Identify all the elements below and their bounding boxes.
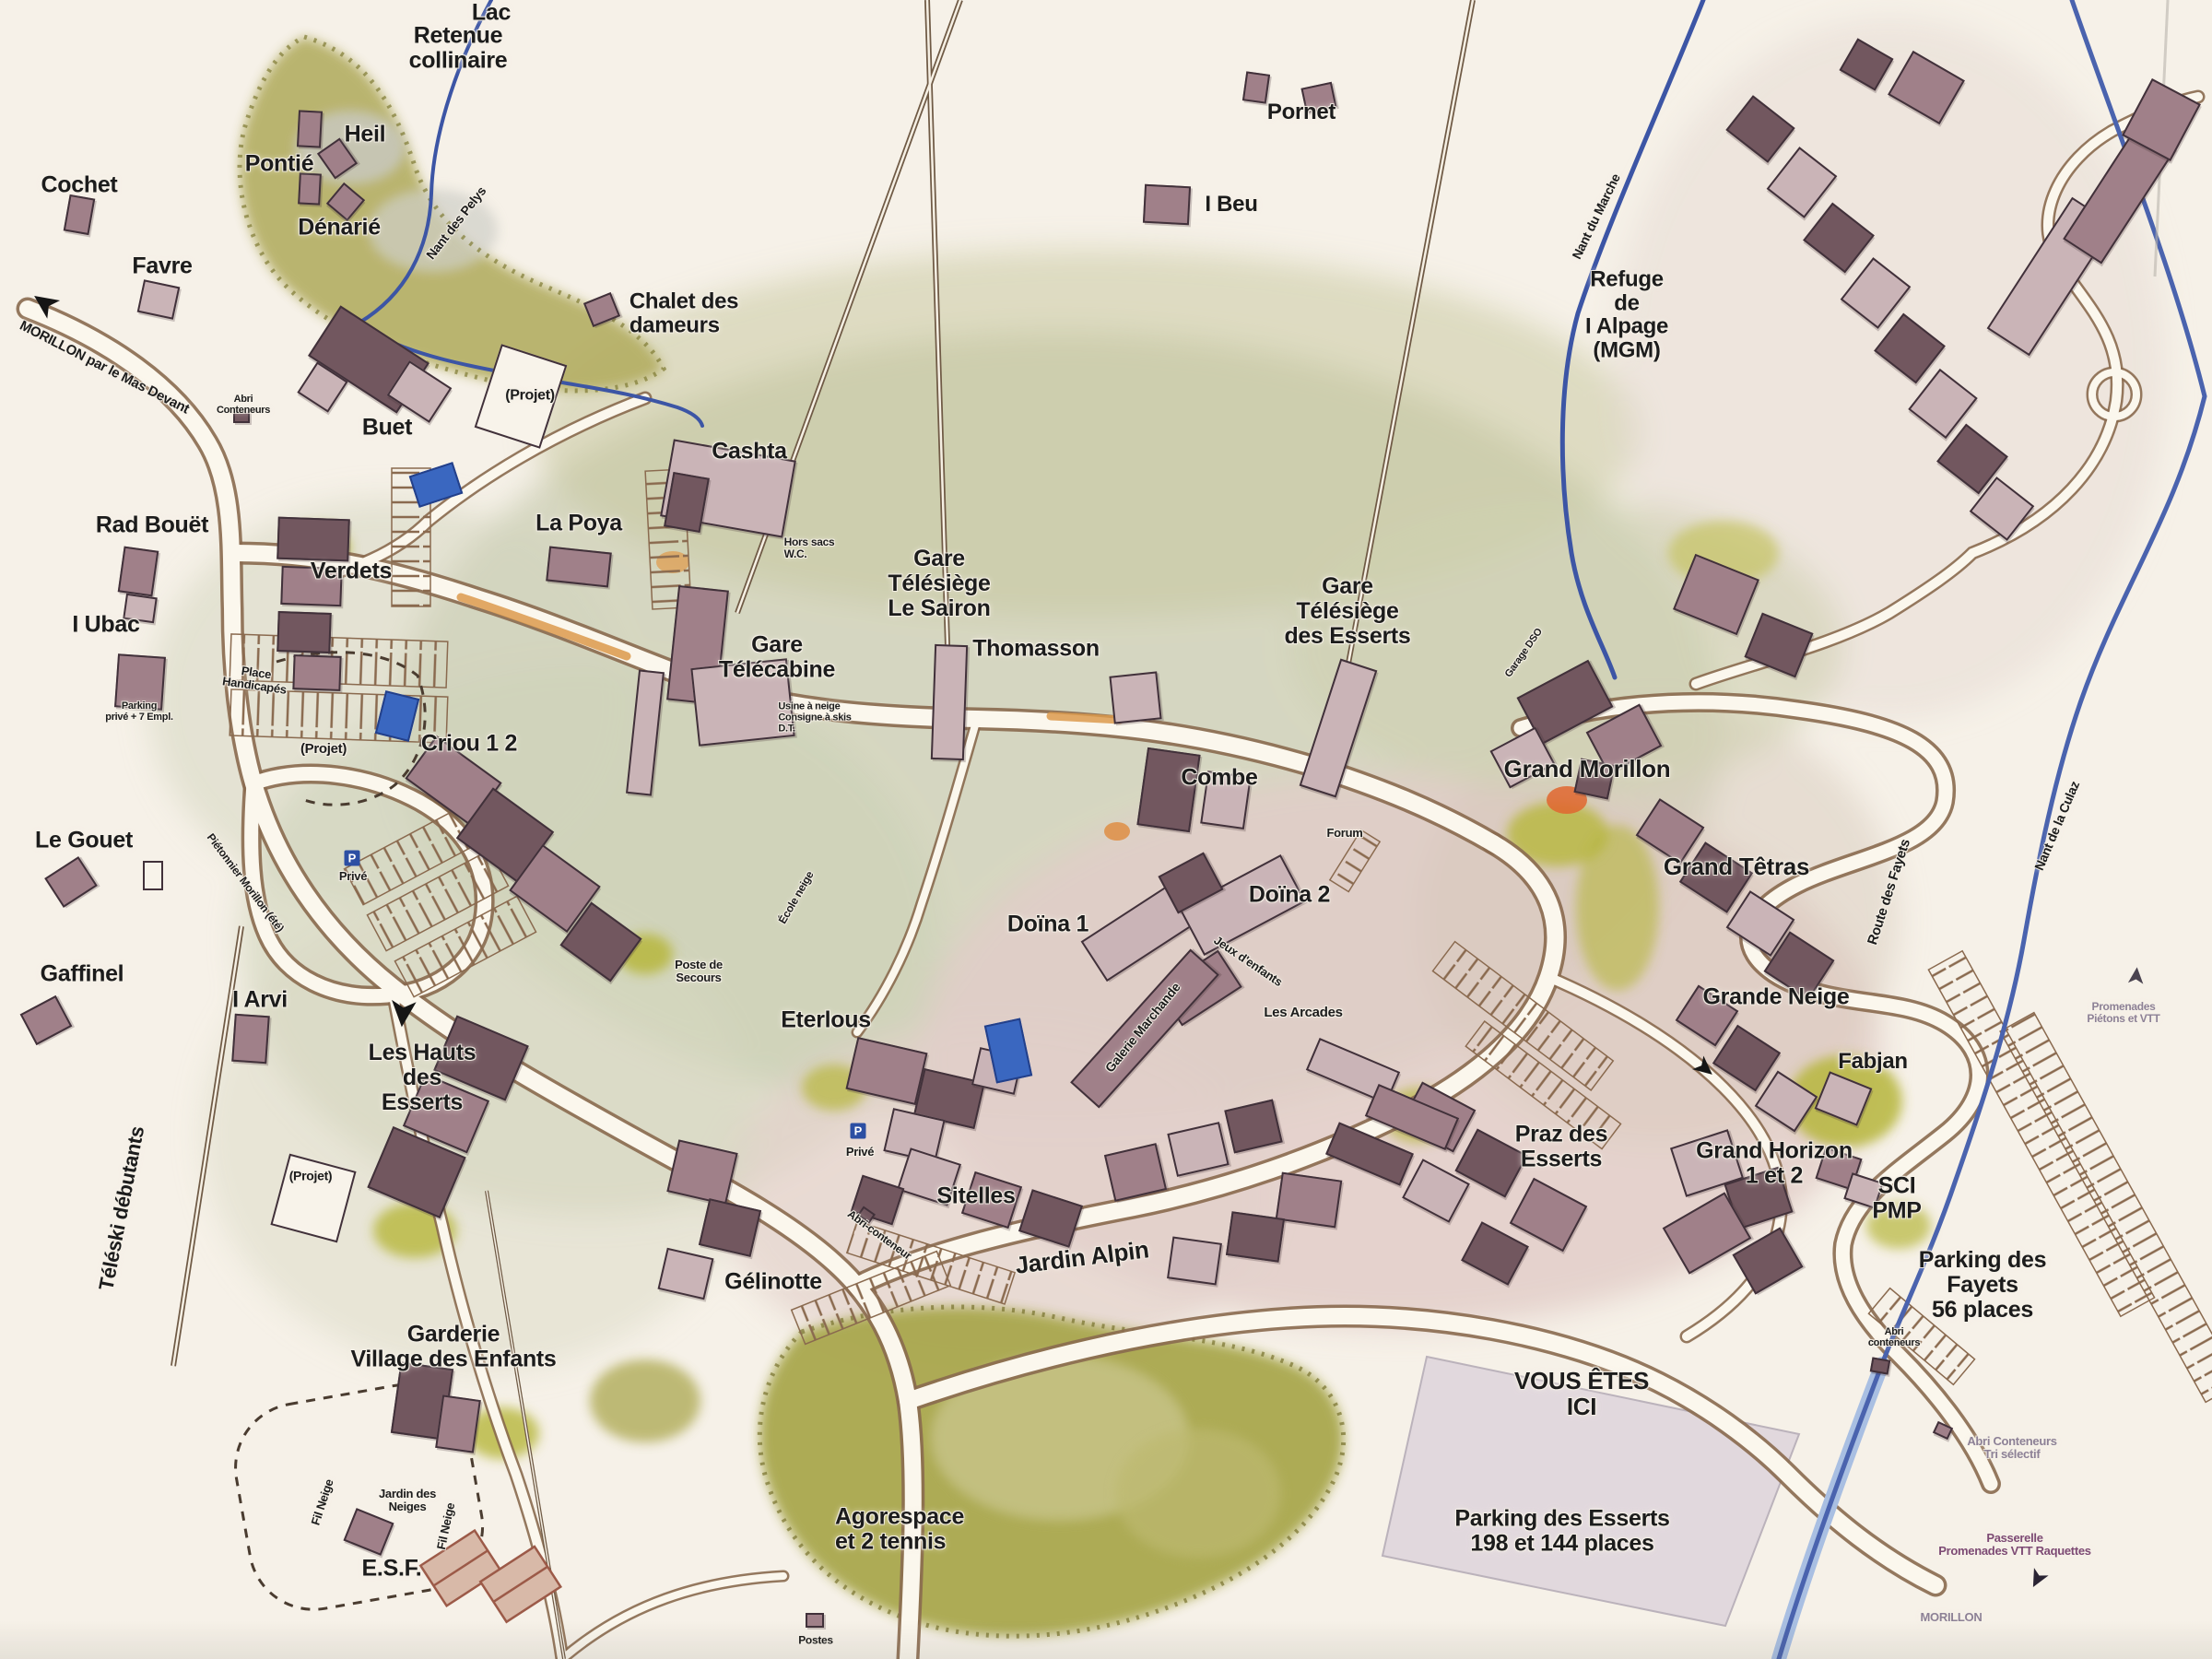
morillon-par-le-mas-devant-label: MORILLON par le Mas Devant	[18, 319, 192, 418]
abri-conteneurs-tri-selectif-label: Abri ConteneursTri sélectif	[1967, 1435, 2056, 1461]
parking-des-esserts-label: Parking des Esserts198 et 144 places	[1454, 1506, 1669, 1556]
sitelles-label: Sitelles	[936, 1184, 1015, 1209]
jardin-alpin-label: Jardin Alpin	[1014, 1237, 1150, 1278]
eterlous-label: Eterlous	[781, 1008, 871, 1033]
galerie-marchande-label: Galerie Marchande	[1102, 981, 1182, 1076]
criou-1-2-label: Criou 1 2	[421, 732, 517, 757]
buet-label: Buet	[362, 416, 412, 441]
doina-1-label: Doïna 1	[1007, 912, 1088, 937]
heil-label: Heil	[345, 123, 386, 147]
agorespace-label: Agorespaceet 2 tennis	[835, 1504, 964, 1554]
garage-dso-label: Garage DSO	[1503, 627, 1545, 679]
les-arcades-label: Les Arcades	[1264, 1006, 1342, 1020]
i-beu-label: I Beu	[1205, 193, 1257, 217]
grand-tetras-label: Grand Têtras	[1664, 854, 1809, 880]
gelinotte-label: Gélinotte	[724, 1270, 822, 1295]
place-handicapes-label: PlaceHandicapés	[221, 662, 288, 696]
pontie-label: Pontié	[245, 152, 314, 177]
jeux-d-enfants-label: Jeux d'enfants	[1211, 934, 1284, 989]
rad-bouet-label: Rad Bouët	[96, 513, 208, 538]
pornet-label: Pornet	[1267, 100, 1335, 124]
scan-edge-shade	[0, 1620, 2212, 1659]
teleski-debutants-label: Téléski débutants	[95, 1124, 148, 1292]
combe-label: Combe	[1181, 766, 1257, 791]
i-ubac-label: I Ubac	[72, 613, 139, 638]
promenades-pietons-vtt-label: PromenadesPiétons et VTT	[2087, 1001, 2159, 1025]
parking-des-fayets-label: Parking desFayets56 places	[1919, 1248, 2046, 1322]
garderie-village-des-enfants-label: GarderieVillage des Enfants	[350, 1322, 556, 1371]
hors-sacs-wc-label: Hors sacsW.C.	[784, 536, 835, 560]
doina-2-label: Doïna 2	[1249, 883, 1330, 908]
le-gouet-label: Le Gouet	[35, 829, 133, 853]
jardin-des-neiges-label: Jardin desNeiges	[379, 1488, 436, 1513]
ecole-neige-label: École neige	[777, 869, 817, 925]
abri-conteneurs-nord-label: AbriConteneurs	[217, 394, 270, 417]
route-des-fayets-label: Route des Fayets	[1865, 838, 1913, 947]
poste-de-secours-label: Poste deSecours	[675, 959, 723, 984]
projet-sud-label: (Projet)	[289, 1170, 333, 1183]
fil-neige-est-label: Fil Neige	[435, 1501, 457, 1550]
cashta-label: Cashta	[712, 440, 787, 465]
labels-layer: LacRetenuecollinaireHeilPontiéDénariéCoc…	[0, 0, 2212, 1659]
gare-telecabine-label: GareTélécabine	[719, 632, 835, 682]
retenue-collinaire-label: Retenuecollinaire	[409, 23, 508, 73]
les-hauts-des-esserts-label: Les HautsdesEsserts	[369, 1041, 477, 1114]
esf-label: E.S.F.	[362, 1557, 422, 1582]
resort-map: PP➤➤➤➤➤ LacRetenuecollinaireHeilPontiéDé…	[0, 0, 2212, 1659]
grand-morillon-label: Grand Morillon	[1504, 757, 1671, 782]
chalet-des-dameurs-label: Chalet desdameurs	[629, 289, 738, 336]
usine-a-neige-label: Usine à neigeConsigne à skisD.T.	[778, 701, 851, 734]
vous-etes-ici-label: VOUS ÊTESICI	[1514, 1369, 1649, 1420]
la-poya-label: La Poya	[535, 512, 622, 536]
prive-criou-label: Privé	[339, 870, 367, 883]
favre-label: Favre	[132, 254, 192, 279]
passerelle-promenades-label: PasserellePromenades VTT Raquettes	[1938, 1532, 2090, 1558]
nant-des-pelys-label: Nant des Pelys	[424, 184, 489, 262]
parking-prive-label: Parkingprivé + 7 Empl.	[105, 701, 172, 724]
cochet-label: Cochet	[41, 173, 118, 198]
abri-conteneurs-fayets-label: Abriconteneurs	[1868, 1327, 1920, 1349]
refuge-de-l-alpage-label: RefugedeI Alpage(MGM)	[1585, 268, 1668, 363]
prive-sitelles-label: Privé	[846, 1146, 874, 1159]
projet-nord-label: (Projet)	[505, 387, 555, 403]
grand-horizon-1-et-2-label: Grand Horizon1 et 2	[1696, 1138, 1853, 1188]
gare-telesiege-des-esserts-label: GareTélésiègedes Esserts	[1284, 574, 1410, 648]
pietonnier-morillon-label: Piétonnier Morillon (été)	[205, 831, 286, 934]
praz-des-esserts-label: Praz desEsserts	[1515, 1122, 1607, 1171]
gare-telesiege-le-sairon-label: GareTélésiègeLe Sairon	[888, 547, 990, 620]
nant-de-la-culaz-label: Nant de la Culaz	[2032, 780, 2082, 873]
fil-neige-ouest-label: Fil Neige	[309, 1477, 335, 1526]
sci-pmp-label: SCIPMP	[1872, 1173, 1921, 1223]
forum-label: Forum	[1327, 827, 1363, 840]
nant-du-marche-label: Nant du Marche	[1570, 171, 1623, 261]
abri-conteneur-gelinotte-label: Abri-conteneur	[845, 1208, 913, 1262]
fabjan-label: Fabjan	[1838, 1050, 1908, 1074]
grande-neige-label: Grande Neige	[1703, 985, 1850, 1010]
projet-centre-label: (Projet)	[300, 742, 347, 757]
i-arvi-label: I Arvi	[232, 988, 288, 1013]
gaffinel-label: Gaffinel	[41, 962, 124, 987]
thomasson-label: Thomasson	[972, 637, 1100, 662]
denarie-label: Dénarié	[298, 216, 381, 241]
verdets-label: Verdets	[311, 559, 392, 584]
